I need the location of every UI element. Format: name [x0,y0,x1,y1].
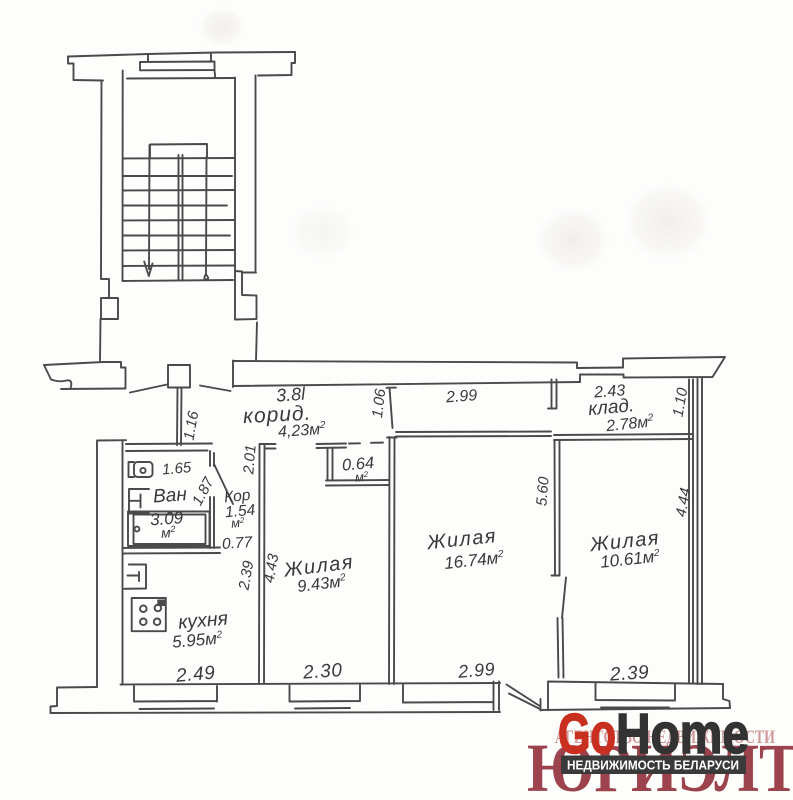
svg-text:4.44: 4.44 [673,487,695,519]
svg-text:1.06: 1.06 [369,387,390,419]
svg-text:Ван: Ван [152,484,188,507]
svg-text:2.30: 2.30 [301,660,343,684]
svg-text:4,23м2: 4,23м2 [277,420,326,441]
svg-text:м2: м2 [160,524,176,541]
svg-text:м2: м2 [230,515,245,531]
svg-text:2.39: 2.39 [608,662,650,686]
svg-text:2.99: 2.99 [444,387,477,406]
svg-text:2.49: 2.49 [174,663,216,687]
svg-text:1.16: 1.16 [181,409,203,441]
svg-text:НЕДВИЖИМОСТЬ БЕЛАРУСИ: НЕДВИЖИМОСТЬ БЕЛАРУСИ [567,759,739,773]
svg-text:м2: м2 [354,469,369,485]
svg-text:5.60: 5.60 [533,475,553,506]
svg-text:0.77: 0.77 [221,534,254,553]
svg-text:2.39: 2.39 [235,559,257,592]
svg-text:2.01: 2.01 [240,444,260,476]
svg-text:5.95м2: 5.95м2 [171,628,223,651]
svg-text:1.65: 1.65 [161,459,192,479]
svg-text:2.99: 2.99 [456,659,496,682]
